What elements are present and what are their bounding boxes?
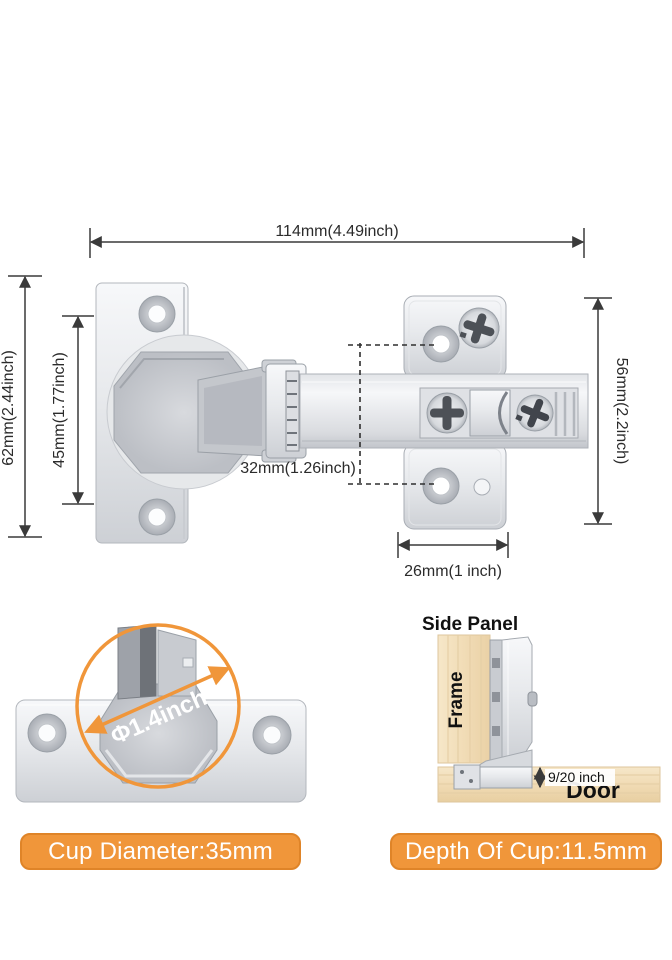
dimension-hole-spacing-label: 32mm(1.26inch) xyxy=(240,460,356,477)
adjustment-knob xyxy=(528,692,537,706)
dimension-plate-height-label: 62mm(2.44inch) xyxy=(0,350,17,466)
cup-plate-hole-left xyxy=(28,714,66,752)
installation-side-view: Side Panel Frame Door xyxy=(390,600,672,830)
dimension-hole-span-label: 45mm(1.77inch) xyxy=(51,352,68,468)
cup-depth-badge: Depth Of Cup:11.5mm xyxy=(390,833,662,870)
cam-screw-left xyxy=(427,393,467,433)
frame-label: Frame xyxy=(446,671,467,728)
dimension-mount-height-label: 56mm(2.2inch) xyxy=(613,358,630,465)
flange-hole-top xyxy=(139,296,175,332)
cup-diameter-badge: Cup Diameter:35mm xyxy=(20,833,301,870)
overlay-depth-annotation: 9/20 inch xyxy=(540,768,615,787)
hinge-top-view-diagram: 114mm(4.49inch) 62mm(2.44inch) 45mm(1.77… xyxy=(0,0,672,600)
cup-diameter-badge-label: Cup Diameter:35mm xyxy=(48,838,273,866)
cup-back-view: Φ1.4inch xyxy=(0,600,340,830)
hinge-artwork xyxy=(96,283,588,543)
side-panel-label: Side Panel xyxy=(422,614,518,635)
frame-board: Frame xyxy=(438,635,490,763)
dimension-mount-width-label: 26mm(1 inch) xyxy=(404,563,502,580)
flange-hole-bottom xyxy=(139,499,175,535)
cup-plate-hole-right xyxy=(253,716,291,754)
dimension-total-width-label: 114mm(4.49inch) xyxy=(275,223,398,240)
cup-depth-badge-label: Depth Of Cup:11.5mm xyxy=(405,838,647,866)
product-dimension-image: 114mm(4.49inch) 62mm(2.44inch) 45mm(1.77… xyxy=(0,0,672,960)
ratchet-strip xyxy=(286,371,299,451)
dimension-mount-width xyxy=(398,532,508,558)
wing-hole-top xyxy=(423,326,459,362)
overlay-depth-label: 9/20 inch xyxy=(548,769,605,785)
